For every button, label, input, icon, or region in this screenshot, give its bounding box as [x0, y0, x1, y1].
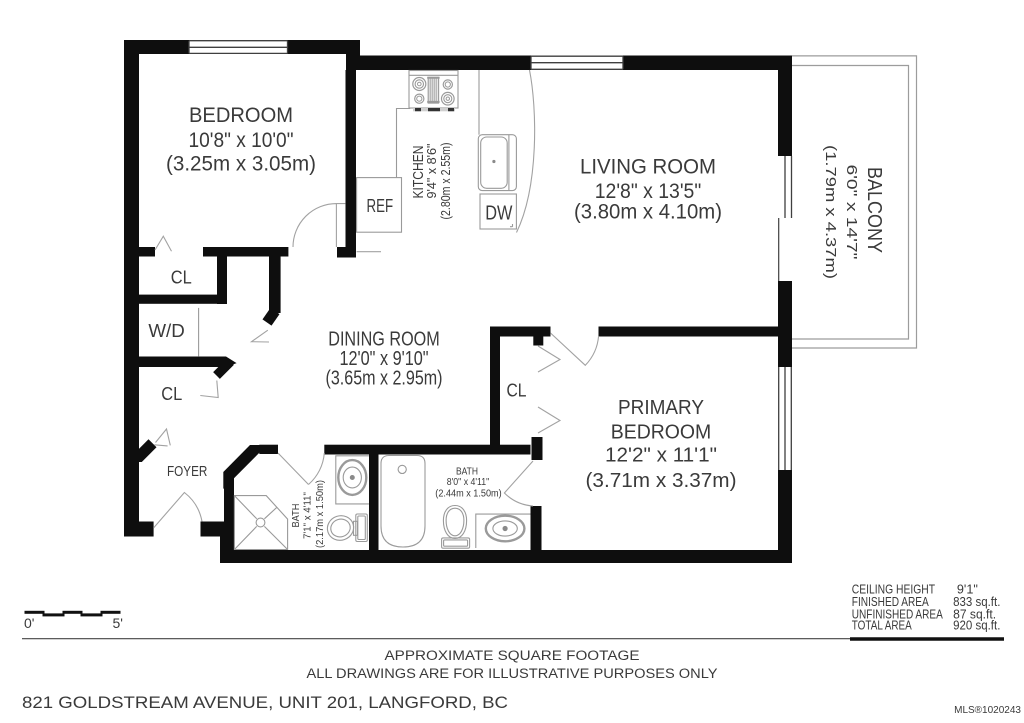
svg-text:(2.17m x 1.50m): (2.17m x 1.50m): [315, 480, 326, 548]
svg-text:(3.71m x 3.37m): (3.71m x 3.37m): [586, 470, 737, 492]
svg-text:BATH: BATH: [456, 467, 478, 478]
svg-text:(2.80m x 2.55m): (2.80m x 2.55m): [438, 143, 453, 220]
svg-text:5': 5': [113, 615, 123, 631]
svg-text:ALL DRAWINGS ARE FOR ILLUSTRAT: ALL DRAWINGS ARE FOR ILLUSTRATIVE PURPOS…: [307, 666, 718, 681]
svg-text:9'4" x 8'6": 9'4" x 8'6": [424, 143, 439, 198]
svg-text:821 GOLDSTREAM AVENUE, UNIT 20: 821 GOLDSTREAM AVENUE, UNIT 201, LANGFOR…: [22, 694, 508, 712]
svg-text:(1.79m x 4.37m): (1.79m x 4.37m): [822, 145, 839, 279]
svg-text:10'8" x 10'0": 10'8" x 10'0": [189, 129, 294, 152]
svg-text:0': 0': [24, 615, 34, 631]
svg-text:LIVING ROOM: LIVING ROOM: [580, 156, 716, 179]
svg-text:BEDROOM: BEDROOM: [611, 422, 712, 444]
svg-text:FOYER: FOYER: [167, 464, 207, 480]
svg-text:CL: CL: [171, 268, 192, 288]
svg-text:CL: CL: [161, 384, 182, 404]
svg-text:7'1" x 4'11": 7'1" x 4'11": [303, 492, 314, 539]
svg-text:(2.44m x 1.50m): (2.44m x 1.50m): [435, 488, 501, 499]
svg-text:BATH: BATH: [291, 504, 302, 528]
svg-text:CL: CL: [507, 380, 527, 400]
svg-text:TOTAL AREA: TOTAL AREA: [852, 618, 912, 633]
svg-text:W/D: W/D: [148, 321, 184, 341]
svg-text:PRIMARY: PRIMARY: [618, 397, 704, 419]
svg-text:DW: DW: [485, 203, 512, 225]
svg-text:REF: REF: [367, 196, 394, 216]
svg-text:6'0" x 14'7": 6'0" x 14'7": [843, 165, 860, 260]
svg-text:(3.80m x 4.10m): (3.80m x 4.10m): [574, 201, 722, 224]
svg-text:BEDROOM: BEDROOM: [189, 104, 293, 127]
svg-text:APPROXIMATE SQUARE FOOTAGE: APPROXIMATE SQUARE FOOTAGE: [385, 648, 640, 663]
svg-text:12'2" x 11'1": 12'2" x 11'1": [605, 445, 717, 467]
svg-text:BALCONY: BALCONY: [863, 167, 885, 253]
svg-text:920 sq.ft.: 920 sq.ft.: [953, 618, 1000, 633]
svg-text:(3.25m x 3.05m): (3.25m x 3.05m): [166, 153, 316, 176]
svg-text:8'0" x 4'11": 8'0" x 4'11": [447, 477, 490, 488]
svg-text:MLS®1020243: MLS®1020243: [954, 705, 1021, 716]
svg-text:(3.65m x 2.95m): (3.65m x 2.95m): [326, 367, 443, 389]
